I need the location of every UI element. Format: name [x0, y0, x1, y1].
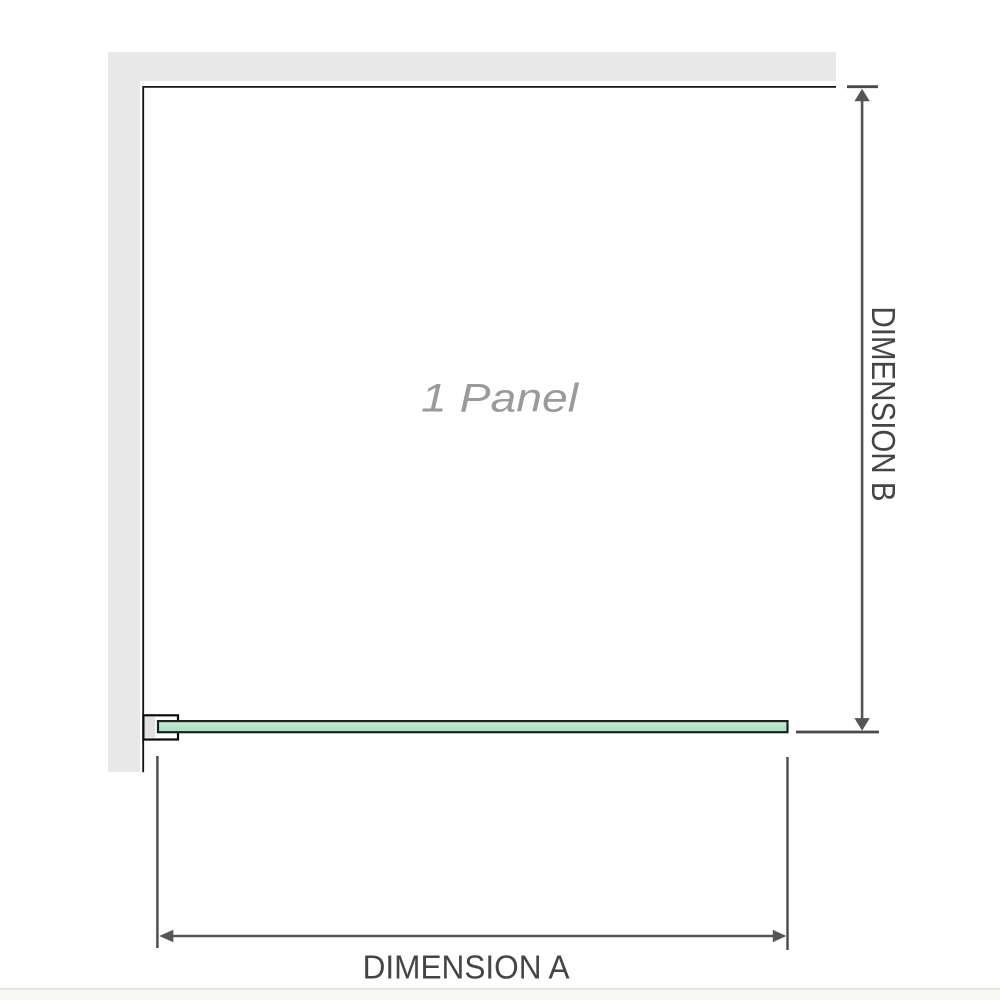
svg-text:1 Panel: 1 Panel [421, 377, 579, 421]
svg-text:DIMENSION A: DIMENSION A [363, 949, 570, 986]
svg-text:DIMENSION B: DIMENSION B [865, 307, 902, 502]
